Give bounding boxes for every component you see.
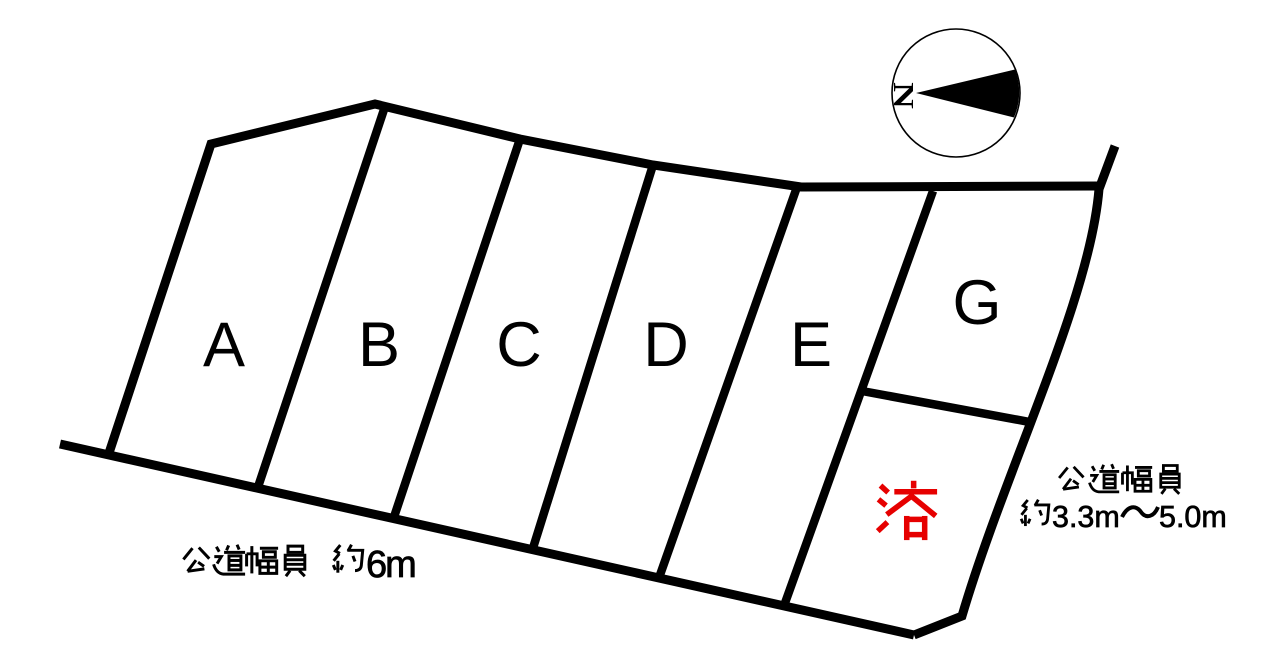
svg-text:N: N bbox=[887, 82, 918, 109]
svg-text:6m: 6m bbox=[366, 544, 415, 586]
svg-text:5.0m: 5.0m bbox=[1159, 500, 1227, 534]
svg-text:C: C bbox=[496, 310, 542, 380]
svg-text:E: E bbox=[790, 310, 832, 380]
svg-text:3.3m: 3.3m bbox=[1052, 500, 1120, 534]
svg-text:A: A bbox=[203, 310, 245, 380]
svg-text:B: B bbox=[358, 310, 400, 380]
svg-text:G: G bbox=[952, 268, 1001, 338]
svg-text:D: D bbox=[643, 310, 689, 380]
